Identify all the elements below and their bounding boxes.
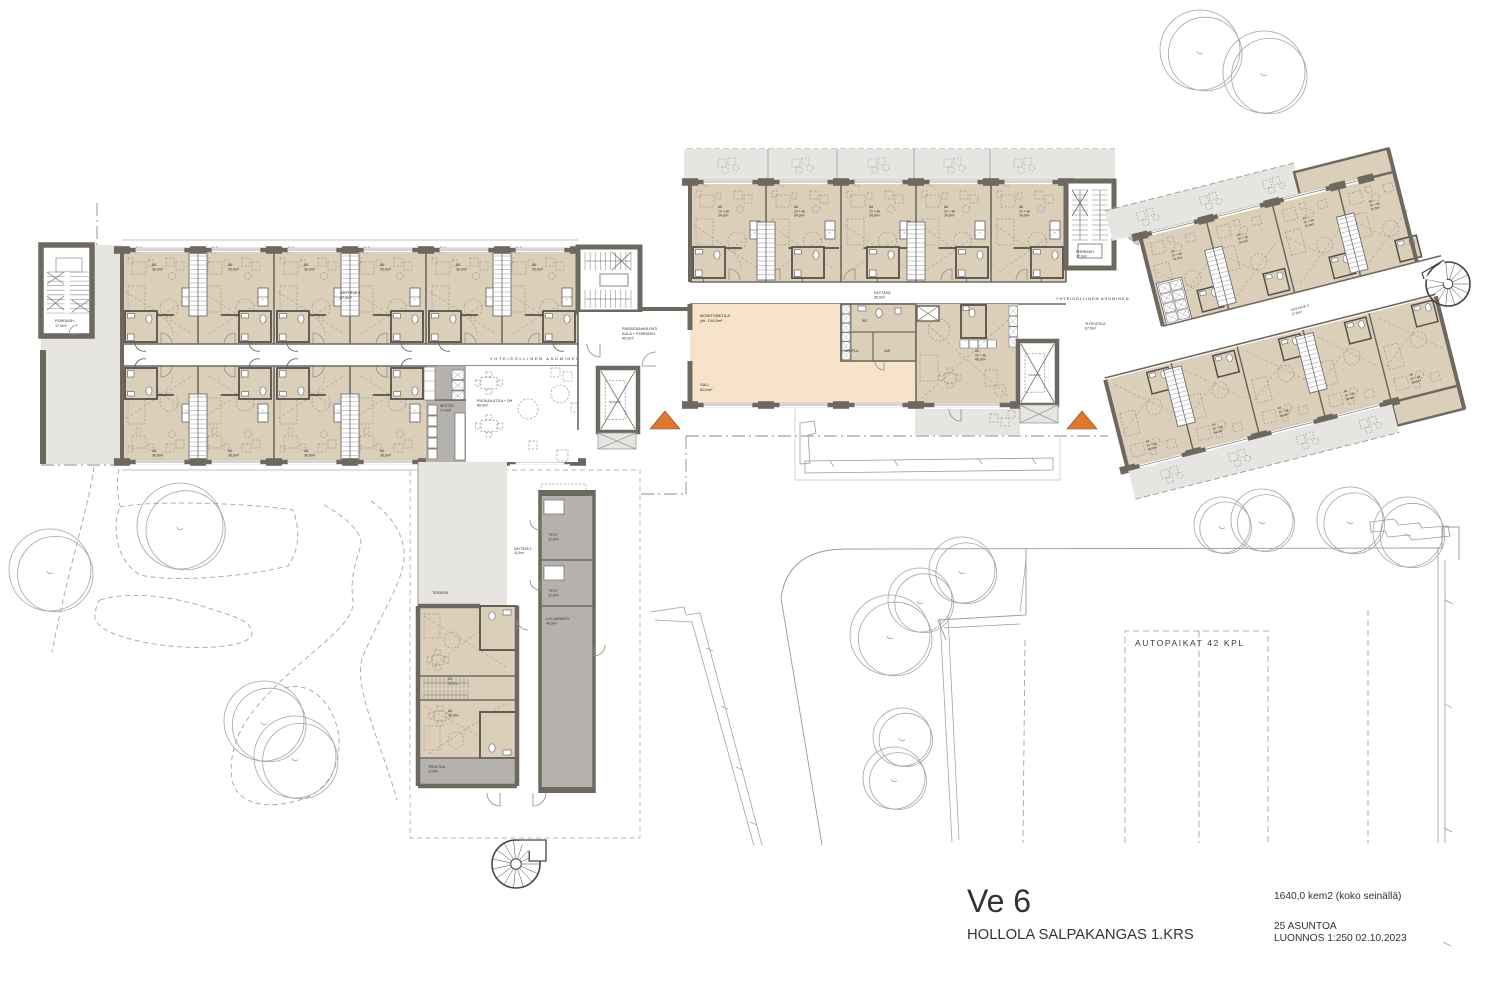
- svg-text:yht. 104,5m²: yht. 104,5m²: [700, 318, 723, 323]
- svg-text:A6: A6: [304, 263, 308, 267]
- svg-text:30,0m²: 30,0m²: [304, 454, 316, 458]
- svg-text:1640,0 kem2 (koko seinällä): 1640,0 kem2 (koko seinällä): [1274, 891, 1401, 902]
- svg-text:YHTEISÖLLINEN ASUMINEN: YHTEISÖLLINEN ASUMINEN: [490, 356, 581, 361]
- svg-text:30,0m²: 30,0m²: [228, 268, 240, 272]
- svg-text:KÄYTÄVÄ: KÄYTÄVÄ: [874, 291, 891, 295]
- svg-text:TERASSI: TERASSI: [432, 591, 448, 595]
- svg-text:68,5m²: 68,5m²: [477, 404, 489, 408]
- svg-text:12,0m²: 12,0m²: [548, 593, 559, 597]
- svg-text:30,0m²: 30,0m²: [304, 268, 316, 272]
- svg-text:A6: A6: [456, 263, 460, 267]
- svg-text:YHTEISÖLLINEN ASUMINEN: YHTEISÖLLINEN ASUMINEN: [1056, 296, 1129, 301]
- svg-text:A6: A6: [532, 263, 536, 267]
- svg-text:AUTOPAIKAT 42 KPL: AUTOPAIKAT 42 KPL: [1135, 638, 1245, 648]
- svg-text:45,0m²: 45,0m²: [622, 337, 635, 341]
- svg-text:34,0m²: 34,0m²: [1019, 214, 1030, 218]
- svg-text:34,0m²: 34,0m²: [944, 214, 955, 218]
- svg-text:30,0m²: 30,0m²: [448, 713, 459, 717]
- svg-text:A6: A6: [304, 449, 308, 453]
- svg-text:30,0m²: 30,0m²: [228, 454, 240, 458]
- svg-text:Ve 6: Ve 6: [967, 883, 1031, 919]
- svg-text:40,0m²: 40,0m²: [546, 621, 557, 625]
- svg-text:PORRASH.: PORRASH.: [1076, 250, 1095, 254]
- svg-text:A6: A6: [228, 449, 232, 453]
- svg-text:30,0m²: 30,0m²: [532, 268, 544, 272]
- svg-text:30,0m²: 30,0m²: [152, 454, 164, 458]
- svg-text:A6: A6: [380, 449, 384, 453]
- svg-text:KEITTIÖ: KEITTIÖ: [440, 404, 454, 408]
- svg-text:34,0m²: 34,0m²: [869, 214, 880, 218]
- svg-text:HISSIKORI: HISSIKORI: [1028, 374, 1040, 377]
- svg-text:12,0m²: 12,0m²: [548, 537, 559, 541]
- svg-text:30,0m²: 30,0m²: [456, 268, 468, 272]
- svg-text:AULA + PORRASH.: AULA + PORRASH.: [622, 332, 656, 336]
- svg-text:30,0m²: 30,0m²: [152, 268, 164, 272]
- svg-text:HISSIKORI: HISSIKORI: [609, 401, 621, 404]
- svg-text:46,0m²: 46,0m²: [975, 358, 986, 362]
- svg-text:60,0m²: 60,0m²: [700, 387, 713, 392]
- svg-text:VAR: VAR: [884, 349, 891, 353]
- svg-text:KÄYTÄVÄ 1: KÄYTÄVÄ 1: [340, 291, 361, 295]
- svg-text:HOLLOLA SALPAKANGAS 1.KRS: HOLLOLA SALPAKANGAS 1.KRS: [967, 927, 1194, 943]
- svg-text:RUOKAILUTILA + OH: RUOKAILUTILA + OH: [477, 399, 513, 403]
- svg-text:17,0m²: 17,0m²: [55, 324, 68, 328]
- svg-text:67,5m²: 67,5m²: [1085, 327, 1097, 331]
- svg-text:11,0m²: 11,0m²: [428, 769, 439, 773]
- svg-text:YHTEISTILA: YHTEISTILA: [1085, 322, 1106, 326]
- svg-text:30,0m²: 30,0m²: [380, 268, 392, 272]
- svg-text:17,0m²: 17,0m²: [440, 409, 452, 413]
- svg-text:30,0m²: 30,0m²: [380, 454, 392, 458]
- svg-text:LUONNOS 1:250 02.10.2023: LUONNOS 1:250 02.10.2023: [1274, 933, 1407, 944]
- svg-text:34,0m²: 34,0m²: [794, 214, 805, 218]
- svg-text:41,0m²: 41,0m²: [514, 551, 524, 555]
- svg-text:PÄÄSISÄÄNKÄYNTI: PÄÄSISÄÄNKÄYNTI: [622, 327, 657, 331]
- svg-text:25 ASUNTOA: 25 ASUNTOA: [1274, 921, 1337, 932]
- svg-text:A6: A6: [152, 449, 156, 453]
- svg-text:35,0m²: 35,0m²: [874, 296, 886, 300]
- svg-text:APUTILA: APUTILA: [845, 349, 859, 353]
- svg-text:PORRASH.: PORRASH.: [55, 319, 75, 323]
- svg-text:34,0m²: 34,0m²: [718, 214, 729, 218]
- svg-text:A6: A6: [152, 263, 156, 267]
- svg-text:A6: A6: [380, 263, 384, 267]
- svg-text:67,6m²: 67,6m²: [340, 296, 353, 300]
- svg-text:A6: A6: [228, 263, 232, 267]
- svg-text:WC: WC: [862, 319, 868, 323]
- svg-text:17,0m²: 17,0m²: [1076, 255, 1088, 259]
